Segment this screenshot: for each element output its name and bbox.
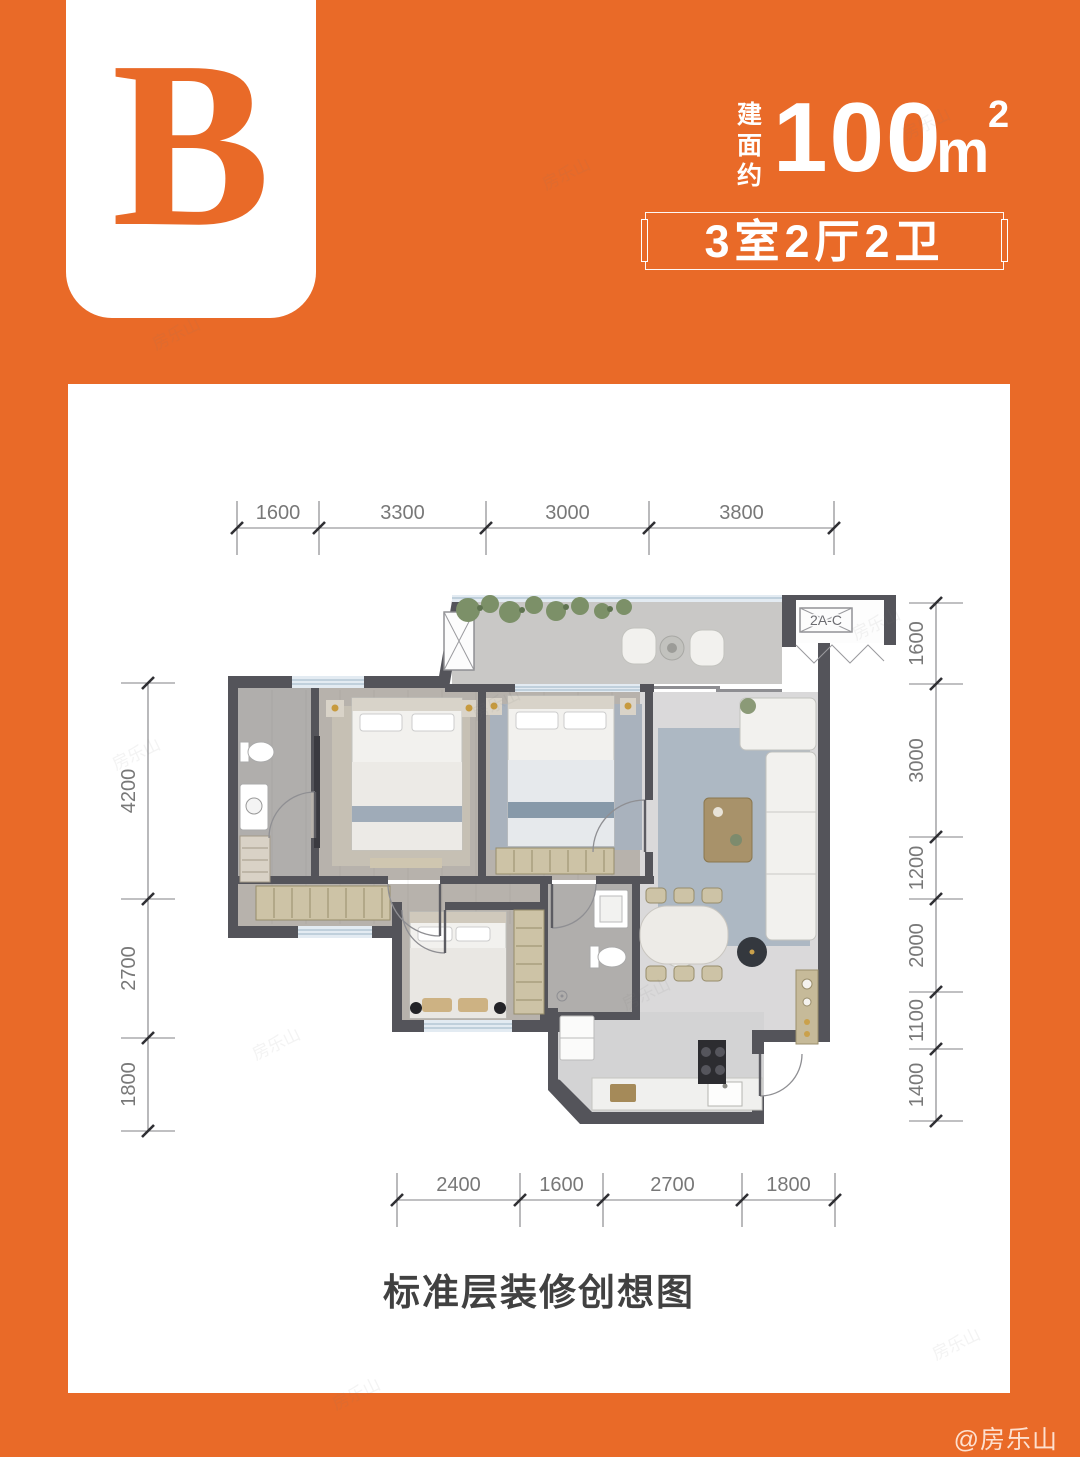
faint-watermark: 房乐山: [537, 150, 594, 195]
plan-caption: 标准层装修创想图: [68, 1262, 1010, 1316]
area-unit: m: [936, 122, 989, 182]
area-value: 100: [773, 88, 943, 186]
spec-box-left-ornament: [641, 219, 648, 262]
credit-watermark: @房乐山: [954, 1420, 1058, 1456]
floorplan-panel: [68, 384, 1010, 1393]
area-prefix-label: 建面约: [737, 100, 765, 192]
layout-spec-text: 3室2厅2卫: [704, 219, 944, 264]
spec-box-right-ornament: [1001, 219, 1008, 262]
unit-letter: B: [112, 26, 271, 264]
layout-spec-box: 3室2厅2卫: [645, 212, 1004, 270]
unit-type-badge: B: [66, 0, 316, 318]
area-unit-superscript: 2: [988, 96, 1009, 134]
